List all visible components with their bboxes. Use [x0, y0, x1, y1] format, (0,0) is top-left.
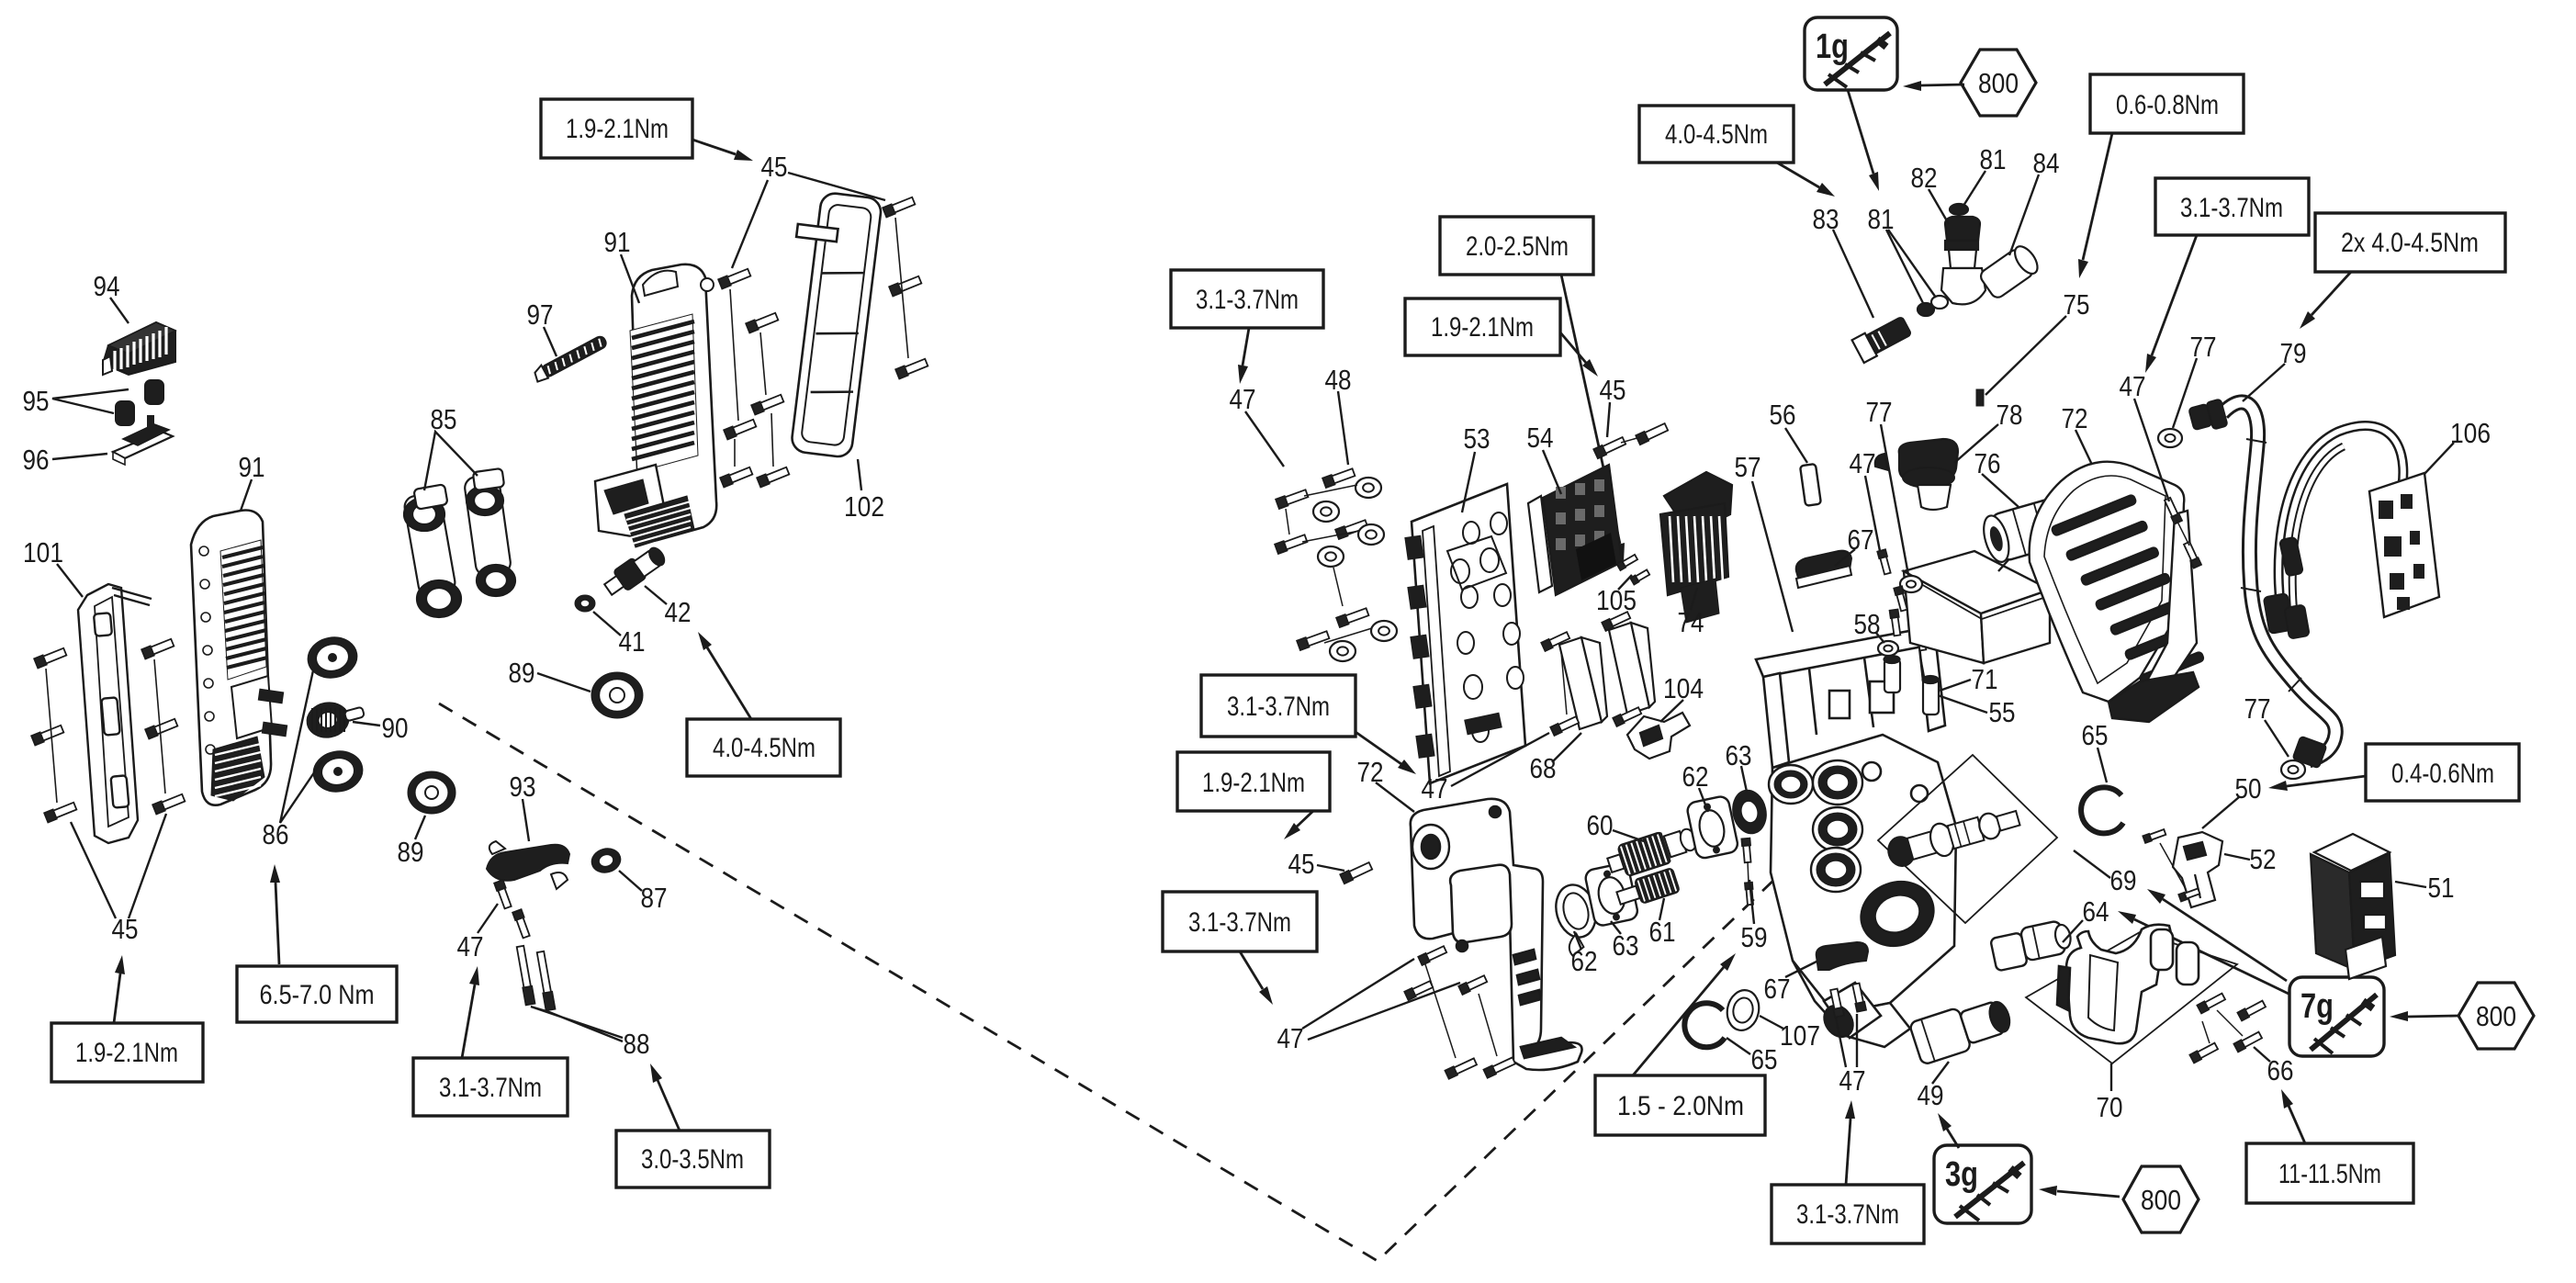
- svg-text:63: 63: [1613, 929, 1639, 962]
- svg-text:800: 800: [1978, 67, 2019, 99]
- svg-text:89: 89: [509, 657, 535, 689]
- svg-text:1.9-2.1Nm: 1.9-2.1Nm: [75, 1038, 178, 1068]
- svg-text:47: 47: [1839, 1064, 1866, 1097]
- svg-text:87: 87: [641, 882, 668, 914]
- svg-text:11-11.5Nm: 11-11.5Nm: [2278, 1159, 2381, 1189]
- svg-text:104: 104: [1663, 672, 1704, 704]
- svg-text:3g: 3g: [1945, 1155, 1978, 1194]
- svg-text:47: 47: [2120, 370, 2146, 402]
- svg-text:81: 81: [1980, 143, 2007, 175]
- svg-text:77: 77: [2190, 331, 2217, 363]
- svg-text:57: 57: [1735, 451, 1761, 483]
- svg-text:54: 54: [1527, 422, 1554, 454]
- svg-text:2.0-2.5Nm: 2.0-2.5Nm: [1466, 231, 1569, 262]
- svg-text:51: 51: [2428, 872, 2455, 904]
- svg-text:83: 83: [1813, 203, 1839, 235]
- svg-text:78: 78: [1997, 399, 2023, 431]
- svg-text:1.9-2.1Nm: 1.9-2.1Nm: [1202, 768, 1305, 798]
- svg-text:56: 56: [1770, 399, 1796, 431]
- svg-text:55: 55: [1989, 696, 2016, 728]
- svg-text:4.0-4.5Nm: 4.0-4.5Nm: [713, 733, 816, 763]
- svg-text:60: 60: [1587, 809, 1614, 841]
- svg-text:70: 70: [2097, 1091, 2123, 1123]
- svg-text:88: 88: [624, 1028, 650, 1060]
- svg-text:800: 800: [2141, 1184, 2181, 1216]
- svg-text:72: 72: [2062, 402, 2088, 434]
- svg-text:47: 47: [1277, 1022, 1304, 1054]
- svg-text:86: 86: [263, 818, 289, 850]
- svg-text:0.6-0.8Nm: 0.6-0.8Nm: [2116, 90, 2219, 120]
- svg-text:62: 62: [1682, 760, 1709, 793]
- svg-text:106: 106: [2450, 417, 2491, 449]
- svg-text:47: 47: [1230, 383, 1256, 415]
- svg-text:3.1-3.7Nm: 3.1-3.7Nm: [2180, 193, 2283, 223]
- svg-text:64: 64: [2083, 895, 2109, 928]
- svg-text:97: 97: [527, 298, 554, 331]
- svg-text:85: 85: [431, 403, 457, 435]
- svg-text:3.1-3.7Nm: 3.1-3.7Nm: [1796, 1199, 1899, 1230]
- svg-text:1.5 - 2.0Nm: 1.5 - 2.0Nm: [1617, 1091, 1744, 1121]
- svg-text:68: 68: [1530, 752, 1557, 784]
- svg-text:1g: 1g: [1816, 28, 1849, 66]
- svg-text:82: 82: [1911, 162, 1938, 194]
- svg-text:48: 48: [1325, 364, 1352, 396]
- svg-text:65: 65: [2082, 719, 2109, 751]
- svg-text:1.9-2.1Nm: 1.9-2.1Nm: [566, 114, 669, 144]
- svg-text:84: 84: [2033, 147, 2060, 179]
- svg-text:52: 52: [2250, 843, 2277, 875]
- svg-text:41: 41: [619, 625, 646, 658]
- svg-text:95: 95: [23, 385, 50, 417]
- svg-text:45: 45: [1288, 848, 1315, 880]
- svg-text:105: 105: [1596, 584, 1637, 616]
- svg-text:72: 72: [1357, 756, 1384, 788]
- svg-text:7g: 7g: [2300, 987, 2334, 1026]
- svg-text:71: 71: [1972, 663, 1998, 695]
- svg-text:45: 45: [1600, 374, 1626, 406]
- svg-text:1.9-2.1Nm: 1.9-2.1Nm: [1431, 312, 1534, 343]
- svg-text:77: 77: [2244, 692, 2271, 725]
- svg-text:42: 42: [665, 596, 692, 628]
- svg-text:47: 47: [1850, 447, 1876, 479]
- svg-text:3.1-3.7Nm: 3.1-3.7Nm: [1227, 692, 1330, 722]
- svg-text:89: 89: [398, 836, 424, 868]
- svg-text:96: 96: [23, 444, 50, 476]
- svg-text:58: 58: [1854, 608, 1881, 640]
- svg-text:3.1-3.7Nm: 3.1-3.7Nm: [1196, 285, 1299, 315]
- svg-text:66: 66: [2267, 1054, 2294, 1086]
- svg-text:47: 47: [457, 930, 484, 962]
- svg-text:45: 45: [761, 151, 788, 183]
- svg-text:800: 800: [2476, 1000, 2516, 1032]
- svg-text:61: 61: [1649, 916, 1676, 948]
- svg-text:102: 102: [844, 490, 884, 523]
- svg-text:107: 107: [1780, 1019, 1820, 1052]
- svg-text:67: 67: [1848, 523, 1874, 556]
- svg-text:90: 90: [382, 712, 409, 744]
- svg-text:2x 4.0-4.5Nm: 2x 4.0-4.5Nm: [2341, 228, 2479, 258]
- svg-text:75: 75: [2064, 288, 2090, 321]
- svg-text:91: 91: [239, 451, 265, 483]
- svg-text:6.5-7.0 Nm: 6.5-7.0 Nm: [260, 980, 375, 1010]
- svg-text:94: 94: [94, 270, 120, 302]
- svg-text:4.0-4.5Nm: 4.0-4.5Nm: [1665, 119, 1768, 150]
- svg-text:50: 50: [2235, 772, 2262, 805]
- svg-text:49: 49: [1918, 1079, 1944, 1111]
- svg-text:47: 47: [1422, 772, 1448, 805]
- svg-text:77: 77: [1866, 396, 1893, 428]
- svg-text:53: 53: [1464, 422, 1490, 455]
- svg-text:69: 69: [2110, 864, 2137, 896]
- svg-text:3.1-3.7Nm: 3.1-3.7Nm: [1188, 907, 1291, 938]
- svg-text:81: 81: [1868, 203, 1895, 235]
- svg-text:65: 65: [1751, 1043, 1778, 1075]
- svg-text:59: 59: [1741, 921, 1768, 953]
- svg-text:91: 91: [604, 226, 631, 258]
- svg-text:74: 74: [1678, 606, 1704, 638]
- svg-text:76: 76: [1974, 447, 2001, 479]
- svg-text:63: 63: [1726, 739, 1752, 771]
- svg-text:3.1-3.7Nm: 3.1-3.7Nm: [439, 1073, 542, 1103]
- svg-text:62: 62: [1571, 945, 1598, 977]
- svg-text:93: 93: [510, 771, 536, 803]
- svg-text:3.0-3.5Nm: 3.0-3.5Nm: [641, 1144, 744, 1175]
- svg-text:0.4-0.6Nm: 0.4-0.6Nm: [2391, 759, 2494, 789]
